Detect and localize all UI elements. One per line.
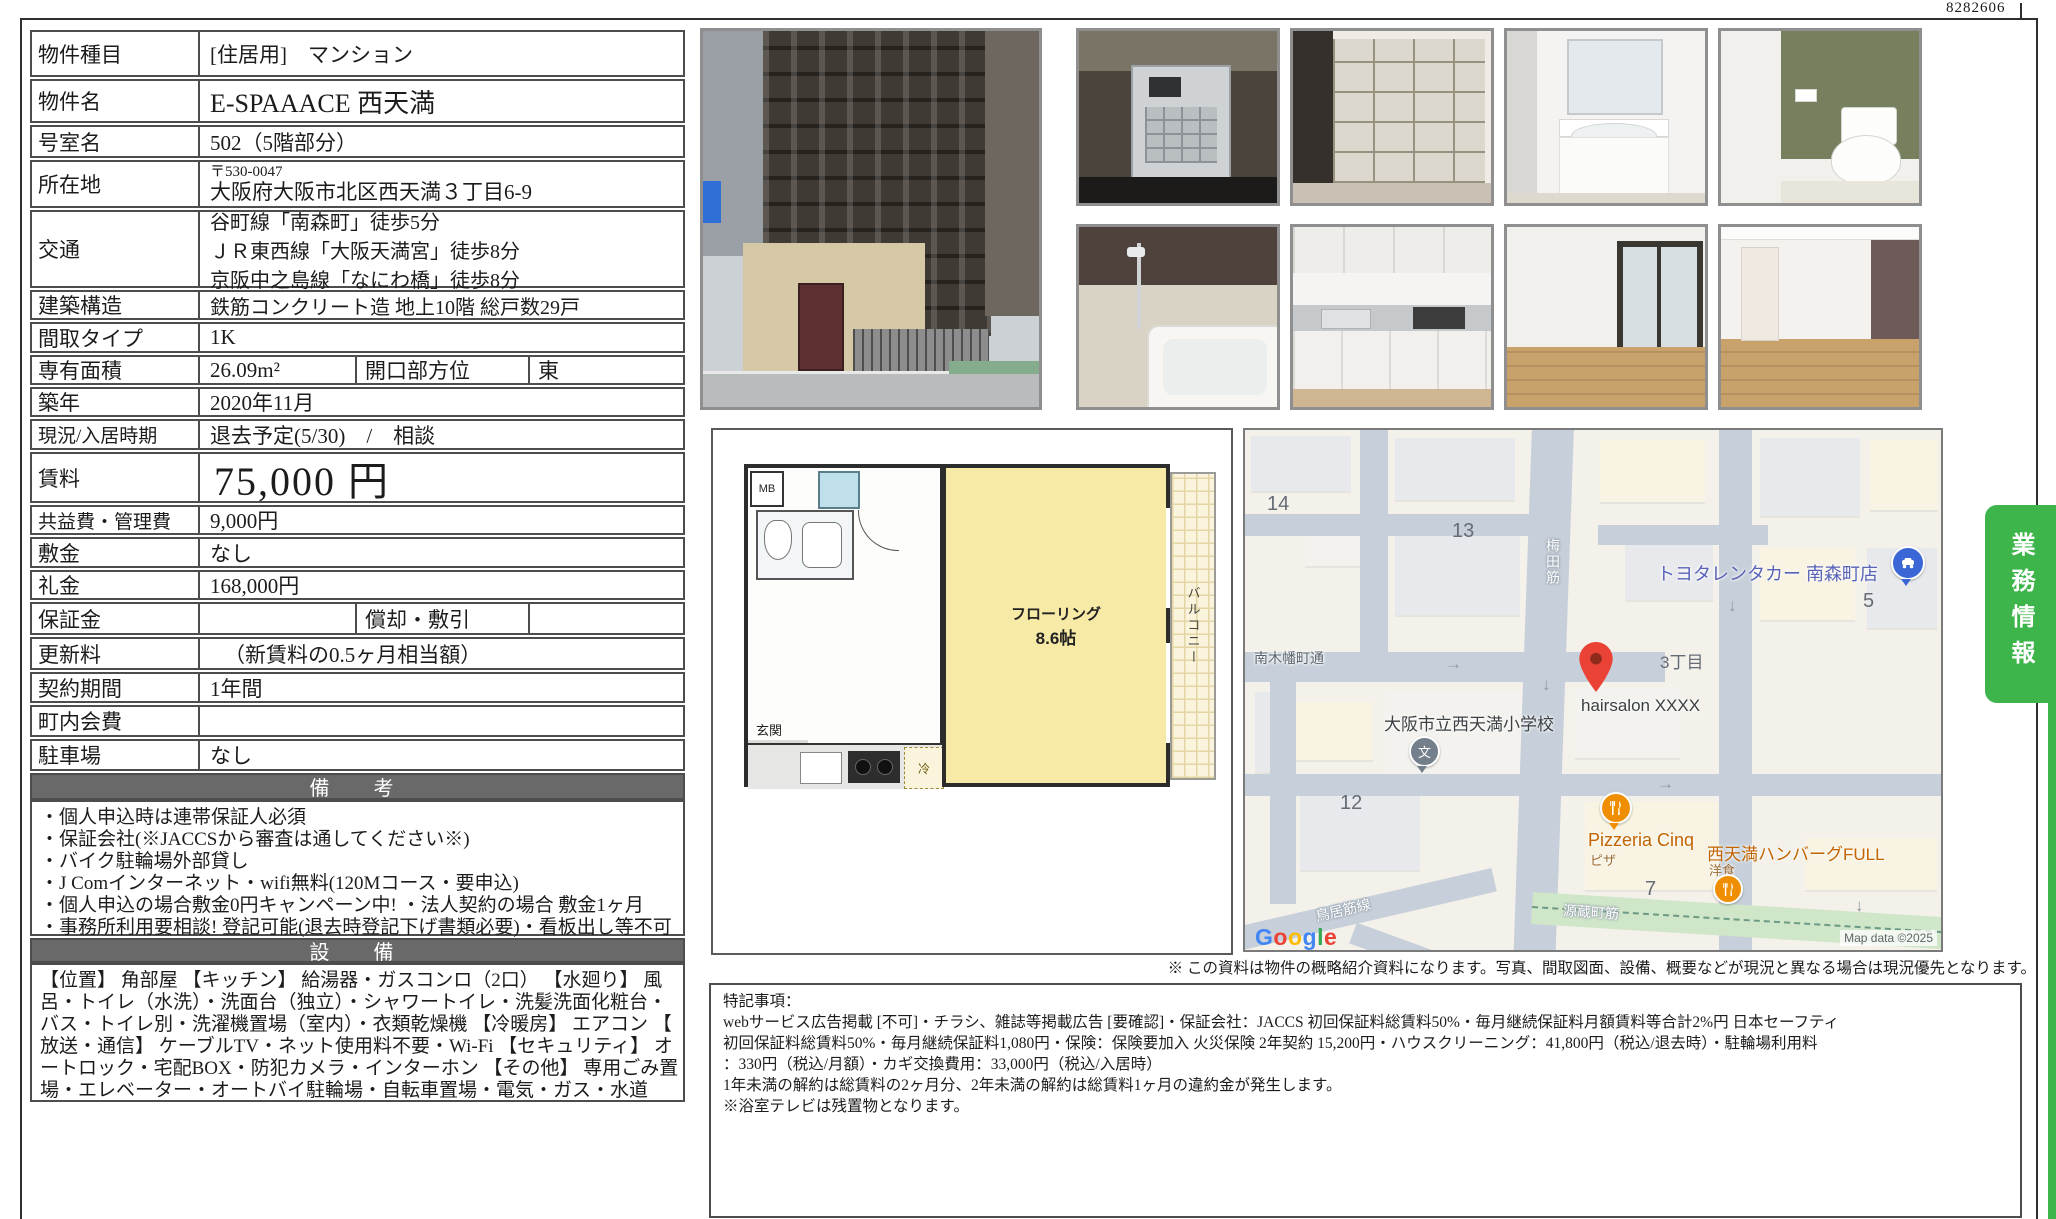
building-side (985, 31, 1039, 316)
map-building (1251, 436, 1351, 491)
map-road (1245, 514, 1565, 536)
remarks-box: ・個人申込時は連帯保証人必須 ・保証会社(※JACCSから審査は通してください※… (30, 800, 685, 936)
one-way-arrow-down: ↓ (1855, 896, 1864, 916)
special-notes-line: ：330円（税込/月額）・カギ交換費用：33,000円（税込/入居時） (723, 1054, 2008, 1075)
row-value (200, 604, 355, 633)
door (1741, 247, 1779, 341)
meter-box: MB (750, 471, 784, 507)
row-value: E-SPAAACE 西天満 (200, 81, 683, 121)
mirror (1567, 39, 1663, 115)
counter (1079, 177, 1280, 205)
row-value: 26.09m² (200, 357, 355, 383)
school-pin-tail (1417, 766, 1427, 773)
business-info-tab[interactable]: 業務情報 (1985, 505, 2056, 703)
floorplan-entry-section: MB 玄関 冷 (744, 464, 944, 787)
row-label: 物件名 (32, 81, 200, 121)
accent-wall (1871, 227, 1922, 343)
photo-room-accent (1718, 224, 1922, 410)
photo-toilet (1718, 28, 1922, 206)
row-value: 502（5階部分） (200, 127, 683, 156)
row-label: 礼金 (32, 572, 200, 598)
remark-line: ・J Comインターネット・wifi無料(120Mコース・要申込) (40, 873, 675, 895)
table-row-town-fee: 町内会費 (30, 705, 685, 737)
restaurant-pin-icon[interactable] (1600, 792, 1632, 824)
row-label: 共益費・管理費 (32, 507, 200, 533)
transport-line: 京阪中之島線「なにわ橋」徒歩8分 (210, 264, 520, 293)
row-value: [住居用] マンション (200, 32, 683, 75)
row-label: 契約期間 (32, 674, 200, 701)
table-row-deposit: 敷金 なし (30, 537, 685, 568)
row-value: 〒530-0047 大阪府大阪市北区西天満３丁目6-9 (200, 162, 683, 206)
equipment-line: 呂・トイレ（水洗）・洗面台（独立）・シャワートイレ・洗髪洗面化粧台・ (40, 992, 675, 1014)
equipment-line: 場・エレベーター・オートバイ駐輪場・自転車置場・電気・ガス・水道 (40, 1080, 675, 1102)
shower-head (1127, 247, 1145, 257)
table-row-rent: 賃料 75,000 円 (30, 452, 685, 503)
remark-line: ・個人申込の場合敷金0円キャンペーン中! ・法人契約の場合 敷金1ヶ月 (40, 895, 675, 917)
bathroom-unit (756, 510, 854, 580)
google-logo[interactable]: Google (1255, 924, 1337, 951)
row-label: 号室名 (32, 127, 200, 156)
side-wall (1507, 31, 1537, 205)
one-way-arrow-down: ↓ (1542, 675, 1551, 695)
green-mat (949, 361, 1042, 374)
photo-mailboxes (1290, 28, 1494, 206)
opening-direction-value: 東 (530, 357, 680, 383)
kitchen-counter: 冷 (748, 743, 944, 789)
map-attribution: Map data ©2025 (1840, 930, 1937, 946)
table-row-address: 所在地 〒530-0047 大阪府大阪市北区西天満３丁目6-9 (30, 160, 685, 208)
row-label: 駐車場 (32, 741, 200, 769)
photo-building-exterior (700, 28, 1042, 410)
block-number: 14 (1267, 493, 1289, 516)
row-value: 2020年11月 (200, 389, 683, 415)
block-number: 7 (1645, 878, 1656, 901)
row-value: 鉄筋コンクリート造 地上10階 総戸数29戸 (200, 292, 683, 318)
row-label: 更新料 (32, 639, 200, 668)
photo-washbasin (1504, 28, 1708, 206)
table-row-floor-area: 専有面積 26.09m² 開口部方位 東 (30, 355, 685, 385)
property-pin-icon[interactable] (1579, 642, 1613, 697)
table-row-property-name: 物件名 E-SPAAACE 西天満 (30, 79, 685, 123)
postal-code: 〒530-0047 (210, 164, 283, 180)
intercom-keypad (1145, 107, 1217, 163)
toilet-bowl (1831, 135, 1901, 185)
floorplan-main-room: フローリング 8.6帖 (942, 464, 1170, 787)
mailbox-grid (1333, 39, 1485, 183)
restaurant-pin-icon[interactable] (1713, 874, 1743, 904)
unit-toilet (764, 520, 792, 560)
table-row-structure: 建築構造 鉄筋コンクリート造 地上10階 総戸数29戸 (30, 290, 685, 320)
transport-line: 谷町線「南森町」徒歩5分 (210, 206, 440, 235)
row-label: 町内会費 (32, 707, 200, 735)
remark-line: ・保証会社(※JACCSから審査は通してください※) (40, 829, 675, 851)
floor (1781, 181, 1922, 205)
remark-line: ・個人申込時は連帯保証人必須 (40, 807, 675, 829)
map-building (1760, 438, 1860, 516)
gas-stove (848, 751, 900, 783)
row-label: 賃料 (32, 454, 200, 501)
restaurant-pin-tail (1609, 823, 1619, 830)
border-tick (2020, 3, 2022, 18)
sink (1321, 309, 1371, 329)
equipment-header: 設 備 (30, 938, 685, 963)
room-name-label: フローリング (1011, 603, 1101, 624)
unit-tub (802, 522, 842, 568)
ceiling (1721, 227, 1922, 240)
equipment-line: 放送・通信】 ケーブルTV・ネット使用料不要・Wi-Fi 【セキュリティ】 オ (40, 1036, 675, 1058)
road (703, 371, 1042, 410)
rent-value: 75,000 円 (200, 454, 683, 501)
row-value: 退去予定(5/30) / 相談 (200, 421, 683, 448)
location-map[interactable]: 南木幡町通 梅田筋 鳥居筋線 源蔵町筋 → ↓ ↓ → ↓ 14 13 12 7… (1243, 428, 1943, 952)
one-way-arrow-right: → (1445, 654, 1462, 674)
wood-floor (1721, 339, 1922, 409)
business-info-tab-label: 業務情報 (2003, 532, 2038, 676)
table-row-parking: 駐車場 なし (30, 739, 685, 771)
photo-intercom (1076, 28, 1280, 206)
transport-line: ＪＲ東西線「大阪天満宮」徒歩8分 (210, 235, 520, 264)
refrigerator-space: 冷 (904, 747, 944, 789)
poi-label-school[interactable]: 大阪市立西天満小学校 (1384, 710, 1554, 735)
table-row-renewal-fee: 更新料 （新賃料の0.5ヶ月相当額） (30, 637, 685, 670)
table-row-guarantee-money: 保証金 償却・敷引 (30, 602, 685, 635)
special-notes-line: 初回保証料総賃料50%・毎月継続保証料1,080円・保険：保険要加入 火災保険 … (723, 1033, 2008, 1054)
door-swing-arc (858, 510, 899, 551)
map-building (1870, 440, 1938, 510)
car-rental-pin-tail (1901, 579, 1911, 586)
balcony: バルコニー (1170, 472, 1216, 780)
block-number: 12 (1340, 792, 1362, 815)
remark-line: ・バイク駐輪場外部貸し (40, 851, 675, 873)
row-label: 保証金 (32, 604, 200, 633)
kitchen-sink (800, 752, 842, 784)
map-road-branch (1349, 923, 1479, 952)
road-label-minamikobata: 南木幡町通 (1254, 648, 1324, 668)
sink-unit (818, 471, 860, 509)
one-way-arrow-right: → (1657, 774, 1674, 794)
floor (1293, 183, 1494, 205)
fridge-label: 冷 (918, 760, 930, 777)
accent-wall-brown (1079, 227, 1280, 285)
wood-floor (1507, 347, 1708, 409)
property-sheet: 8282606 物件種目 [住居用] マンション 物件名 E-SPAAACE 西… (0, 0, 2056, 1219)
row-label: 所在地 (32, 162, 200, 206)
photo-room-window (1504, 224, 1708, 410)
balcony-label: バルコニー (1184, 586, 1203, 666)
entrance-door (798, 283, 844, 371)
remarks-header: 備 考 (30, 773, 685, 800)
district-label-3chome: 3丁目 (1660, 648, 1703, 673)
block-number: 13 (1452, 520, 1474, 543)
burner (855, 759, 871, 775)
opening-direction-label: 開口部方位 (355, 357, 530, 383)
table-row-room-number: 号室名 502（5階部分） (30, 125, 685, 158)
block-number: 5 (1863, 590, 1874, 613)
row-label: 交通 (32, 212, 200, 286)
one-way-arrow-down: ↓ (1728, 596, 1737, 616)
address-text: 大阪府大阪市北区西天満３丁目6-9 (210, 180, 532, 204)
special-notes-line: ※浴室テレビは残置物となります。 (723, 1096, 2008, 1117)
lower-cabinets (1293, 331, 1494, 389)
map-building (1395, 438, 1515, 500)
upper-cabinets (1293, 227, 1494, 273)
document-number: 8282606 (1946, 0, 2016, 17)
special-notes-line: webサービス広告掲載 [不可]・チラシ、雑誌等掲載広告 [要確認]・保証会社：… (723, 1012, 2008, 1033)
row-label: 現況/入居時期 (32, 421, 200, 448)
disclaimer-note: ※ この資料は物件の概略紹介資料になります。写真、間取図面、設備、概要などが現況… (930, 956, 2036, 978)
row-label: 間取タイプ (32, 324, 200, 351)
table-row-common-fee: 共益費・管理費 9,000円 (30, 505, 685, 535)
row-value: 9,000円 (200, 507, 683, 533)
table-row-transport: 交通 谷町線「南森町」徒歩5分 ＪＲ東西線「大阪天満宮」徒歩8分 京阪中之島線「… (30, 210, 685, 288)
equipment-box: 【位置】 角部屋 【キッチン】 給湯器・ガスコンロ（2口） 【水廻り】 風 呂・… (30, 963, 685, 1102)
map-school-grounds (1385, 692, 1540, 787)
stove (1413, 307, 1465, 329)
equipment-line: 【位置】 角部屋 【キッチン】 給湯器・ガスコンロ（2口） 【水廻り】 風 (40, 970, 675, 992)
special-notes-box: 特記事項： webサービス広告掲載 [不可]・チラシ、雑誌等掲載広告 [要確認]… (709, 983, 2022, 1218)
car-glyph (1900, 557, 1916, 569)
row-label: 専有面積 (32, 357, 200, 383)
poi-label-toyota-rental[interactable]: トヨタレンタカー 南森町店 (1657, 560, 1878, 586)
floorplan-panel: MB 玄関 冷 フローリング (711, 428, 1233, 955)
entrance-label: 玄関 (756, 720, 782, 739)
bathtub-inner (1163, 339, 1267, 395)
row-label: 築年 (32, 389, 200, 415)
map-road (1360, 430, 1388, 656)
poi-sublabel-pizza: ピザ (1590, 850, 1616, 869)
fork-knife-glyph (1610, 801, 1622, 815)
poi-label-hairsalon[interactable]: hairsalon XXXX (1581, 696, 1700, 716)
row-label: 敷金 (32, 539, 200, 566)
amortization-label: 償却・敷引 (355, 604, 530, 633)
floor (1293, 389, 1494, 409)
row-value: なし (200, 539, 683, 566)
fork-knife-glyph (1723, 883, 1734, 896)
road-label-vertical: 梅田筋 (1543, 538, 1563, 586)
row-label: 建築構造 (32, 292, 200, 318)
mb-label: MB (759, 483, 776, 495)
special-notes-line: 1年未満の解約は総賃料の2ヶ月分、2年未満の解約は総賃料1ヶ月の違約金が発生しま… (723, 1075, 2008, 1096)
vanity-cabinet (1559, 137, 1669, 195)
paper-holder (1795, 89, 1817, 102)
photo-bathroom (1076, 224, 1280, 410)
table-row-layout-type: 間取タイプ 1K (30, 322, 685, 353)
row-value (200, 707, 683, 735)
dark-wall (1293, 31, 1333, 205)
burner (877, 759, 893, 775)
row-value: 1年間 (200, 674, 683, 701)
special-notes-line: 特記事項： (723, 991, 2008, 1012)
school-glyph: 文 (1418, 742, 1431, 761)
map-building (1600, 440, 1705, 502)
table-row-property-type: 物件種目 [住居用] マンション (30, 30, 685, 77)
table-row-occupancy: 現況/入居時期 退去予定(5/30) / 相談 (30, 419, 685, 450)
table-row-built-year: 築年 2020年11月 (30, 387, 685, 417)
table-row-key-money: 礼金 168,000円 (30, 570, 685, 600)
row-value: なし (200, 741, 683, 769)
floor (1507, 193, 1708, 205)
business-info-panel-edge (2048, 690, 2056, 1219)
photo-kitchen (1290, 224, 1494, 410)
street-sign (703, 181, 721, 223)
room-size-label: 8.6帖 (1036, 624, 1077, 649)
table-row-contract-term: 契約期間 1年間 (30, 672, 685, 703)
amortization-value (530, 604, 680, 633)
row-value: 168,000円 (200, 572, 683, 598)
car-rental-pin-icon[interactable] (1891, 546, 1925, 580)
poi-label-pizzeria[interactable]: Pizzeria Cinq (1588, 830, 1694, 851)
intercom-screen (1149, 77, 1181, 97)
road-label-genzo: 源蔵町筋 (1562, 900, 1619, 923)
equipment-line: バス・トイレ別・洗濯機置場（室内）・衣類乾燥機 【冷暖房】 エアコン 【 (40, 1014, 675, 1036)
window-panes (1623, 247, 1697, 355)
row-value: 1K (200, 324, 683, 351)
row-value: （新賃料の0.5ヶ月相当額） (200, 639, 683, 668)
school-pin-icon[interactable]: 文 (1409, 736, 1440, 767)
equipment-line: ートロック・宅配BOX・防犯カメラ・インターホン 【その他】 専用ごみ置 (40, 1058, 675, 1080)
row-label: 物件種目 (32, 32, 200, 75)
